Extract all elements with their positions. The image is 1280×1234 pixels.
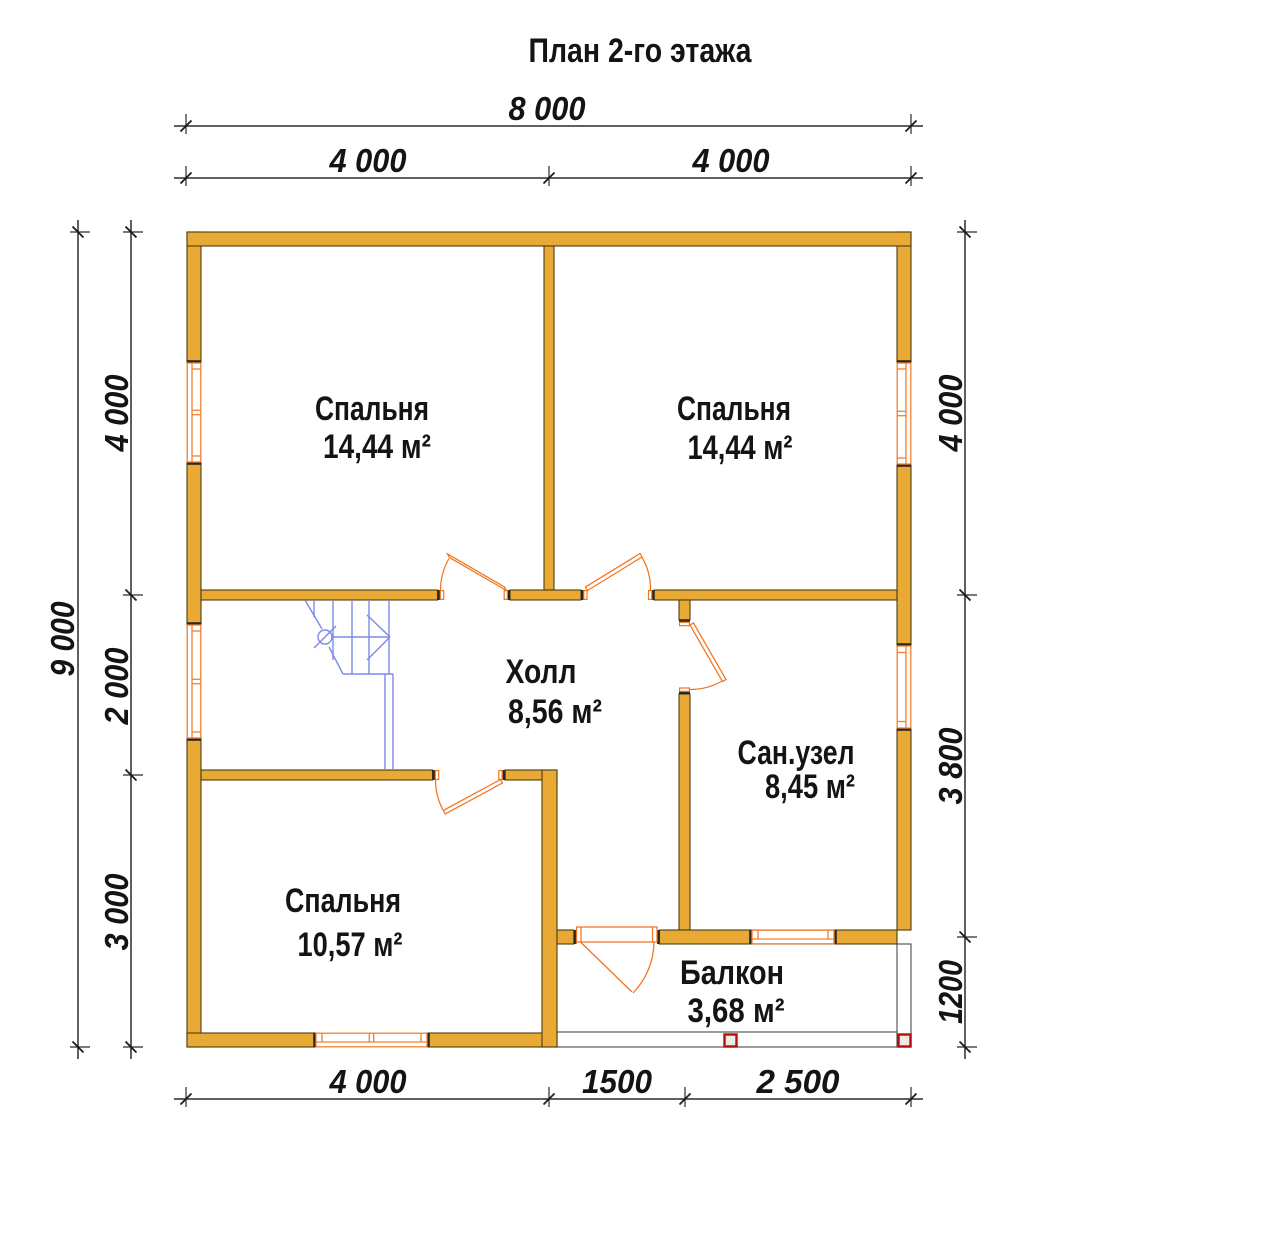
svg-text:4 000: 4 000	[329, 142, 408, 179]
svg-text:4 000: 4 000	[329, 1063, 408, 1100]
svg-text:1500: 1500	[582, 1063, 653, 1100]
svg-text:План 2-го этажа: План 2-го этажа	[529, 32, 753, 70]
svg-text:1200: 1200	[932, 959, 969, 1024]
svg-text:8 000: 8 000	[509, 90, 587, 127]
svg-text:Спальня: Спальня	[285, 882, 401, 920]
svg-text:2 000: 2 000	[98, 647, 135, 726]
svg-text:3 000: 3 000	[98, 873, 135, 951]
svg-text:8,45 м²: 8,45 м²	[765, 768, 855, 806]
svg-text:4 000: 4 000	[98, 374, 135, 453]
svg-text:3,68 м²: 3,68 м²	[688, 992, 785, 1030]
svg-text:10,57 м²: 10,57 м²	[298, 926, 403, 964]
svg-text:14,44 м²: 14,44 м²	[323, 428, 431, 466]
svg-text:2 500: 2 500	[755, 1063, 840, 1100]
svg-text:Спальня: Спальня	[315, 390, 429, 428]
svg-text:9 000: 9 000	[44, 601, 81, 677]
svg-text:Сан.узел: Сан.узел	[738, 734, 855, 772]
svg-text:Холл: Холл	[506, 653, 577, 691]
svg-text:14,44 м²: 14,44 м²	[688, 429, 793, 467]
svg-text:8,56 м²: 8,56 м²	[508, 693, 602, 731]
svg-text:4 000: 4 000	[692, 142, 771, 179]
svg-text:4 000: 4 000	[932, 374, 969, 453]
svg-text:Спальня: Спальня	[677, 390, 791, 428]
svg-text:Балкон: Балкон	[680, 954, 784, 992]
svg-text:3 800: 3 800	[932, 727, 969, 805]
